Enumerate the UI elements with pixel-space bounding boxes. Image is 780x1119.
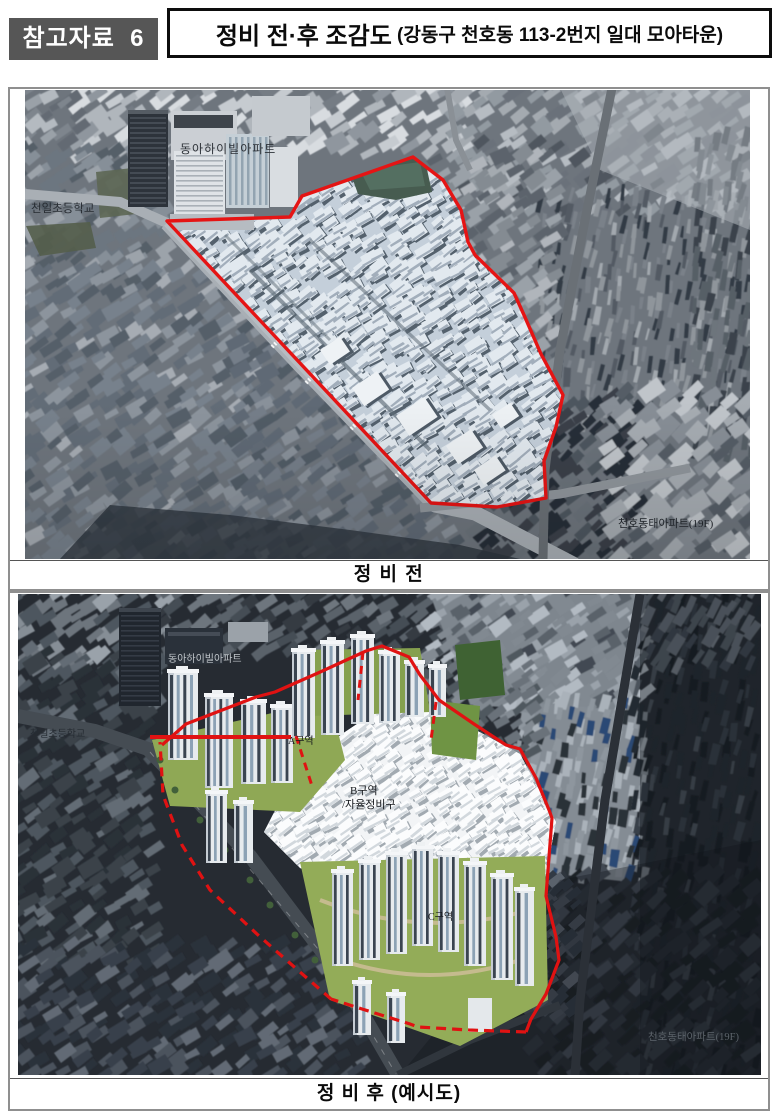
svg-text:천일초등학교: 천일초등학교 [30,728,85,740]
svg-text:B구역: B구역 [350,784,378,797]
svg-text:천호동태아파트(19F): 천호동태아파트(19F) [648,1031,739,1043]
svg-text:A구역: A구역 [288,735,314,747]
svg-text:천일초등학교: 천일초등학교 [31,201,94,215]
svg-text:동아하이빌아파트: 동아하이빌아파트 [180,142,276,156]
svg-text:동아하이빌아파트: 동아하이빌아파트 [168,652,242,665]
svg-text:/자율정비구: /자율정비구 [342,798,396,811]
svg-text:C구역: C구역 [428,911,453,923]
